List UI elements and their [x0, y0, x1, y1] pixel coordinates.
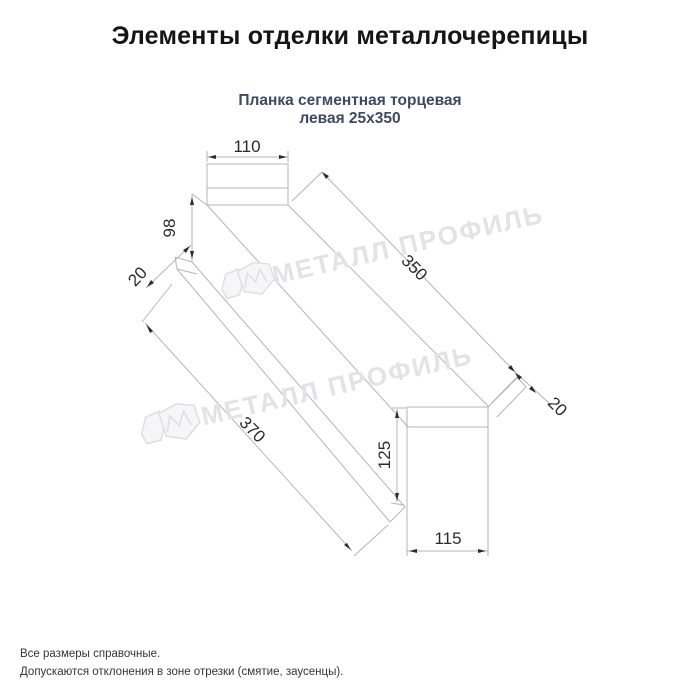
metall-profil-logo-icon — [130, 396, 221, 463]
footer-notes: Все размеры справочные. Допускаются откл… — [20, 645, 343, 681]
footer-note-2: Допускаются отклонения в зоне отрезки (с… — [20, 663, 343, 681]
catalog-page: Элементы отделки металлочерепицы Планка … — [0, 0, 700, 700]
dimension-label-left-height: 98 — [160, 219, 180, 238]
dimension-label-top-width: 110 — [233, 137, 260, 157]
dimension-label-right-height: 125 — [375, 441, 395, 469]
technical-drawing — [0, 0, 700, 700]
dimension-label-bottom-width: 115 — [434, 529, 461, 549]
footer-note-1: Все размеры справочные. — [20, 645, 343, 663]
metall-profil-logo-icon — [212, 253, 291, 318]
